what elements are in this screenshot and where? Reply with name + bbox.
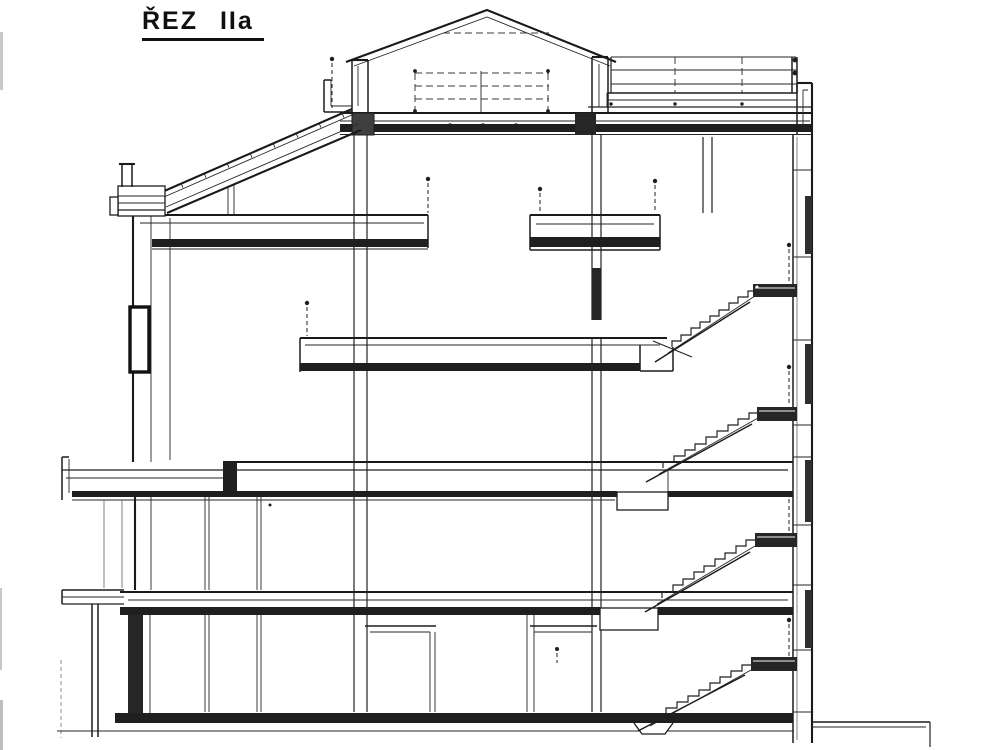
stair-landing [757, 407, 797, 421]
stair-landing [755, 533, 797, 547]
window-section [130, 307, 149, 372]
attic-floor-slab [340, 113, 812, 135]
gable-right-parapet [592, 57, 608, 113]
ground-floor-slab [62, 590, 793, 615]
ground-line-right [812, 722, 930, 747]
basement-floor-slab [57, 713, 793, 731]
stair-landing [753, 284, 797, 297]
basement-lintels [365, 626, 597, 632]
floor-slab-4th-center [530, 215, 660, 250]
gable-roof [346, 10, 616, 66]
left-exterior-wall [92, 216, 170, 737]
hidden-edge-leaders [61, 57, 791, 738]
left-shed-roof [110, 109, 361, 216]
scan-artifacts [0, 32, 3, 750]
drawing-sheet: ŘEZ IIa [0, 0, 1000, 750]
floor-slab-4th-left [133, 215, 428, 249]
stair-flight-4th [640, 284, 797, 371]
chimney-upstand [119, 164, 135, 187]
attic-railing [413, 69, 550, 127]
gable-left-parapet [324, 60, 368, 113]
eave-detail [110, 186, 165, 216]
stair-landing [751, 657, 797, 671]
floor-slab-3rd [300, 338, 692, 372]
stair-flight-2nd [600, 533, 797, 630]
floor-slab-2nd [62, 457, 793, 500]
roof-terrace [588, 57, 812, 135]
building-section-drawing [0, 0, 1000, 750]
